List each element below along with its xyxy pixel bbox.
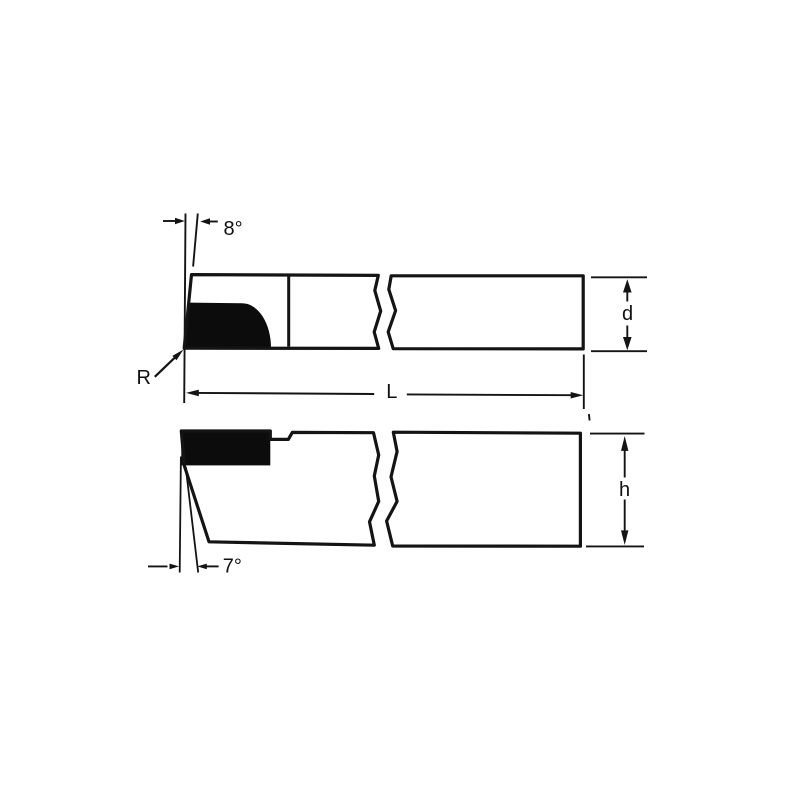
svg-text:L: L — [386, 381, 397, 403]
svg-text:h: h — [619, 479, 630, 501]
svg-text:R: R — [137, 367, 151, 389]
svg-text:8°: 8° — [224, 218, 243, 240]
svg-text:d: d — [622, 303, 633, 325]
svg-text:7°: 7° — [223, 555, 242, 577]
